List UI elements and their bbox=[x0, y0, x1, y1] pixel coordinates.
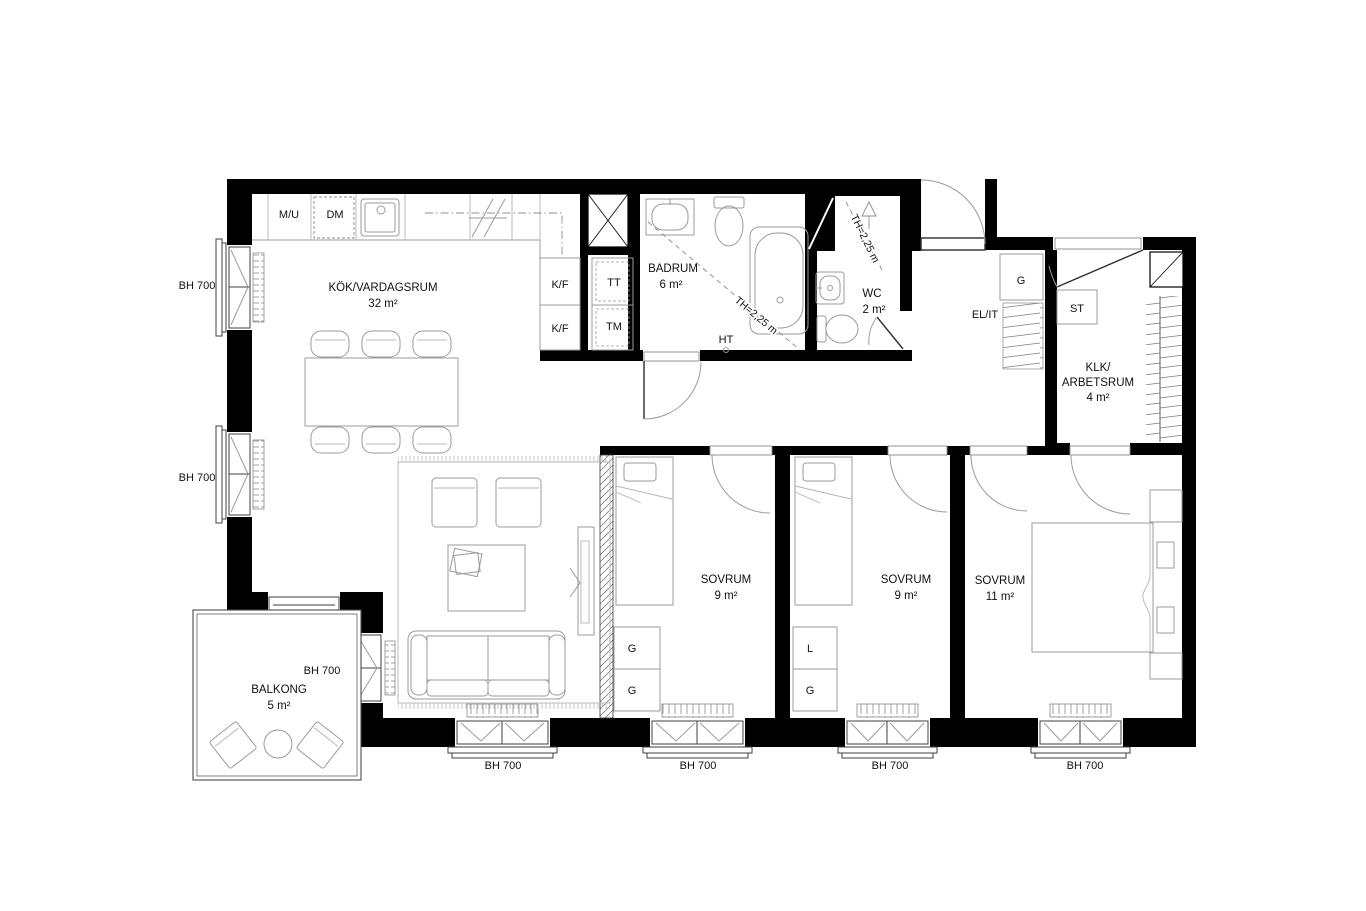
klk-door bbox=[1049, 238, 1143, 287]
annotation-window-height-left-2: BH 700 bbox=[179, 472, 216, 484]
radiator bbox=[857, 704, 918, 717]
label-hall-wardrobe: G bbox=[1017, 275, 1026, 287]
annotation-window-height-bottom-2: BH 700 bbox=[680, 760, 717, 772]
annotation-window-height-balcony: BH 700 bbox=[304, 665, 341, 677]
room-label-bathroom: BADRUM bbox=[648, 263, 698, 275]
bedroom3-door-hall bbox=[970, 446, 1027, 511]
label-bedroom1-wardrobe-2: G bbox=[628, 685, 637, 697]
bedroom1-wardrobes bbox=[614, 627, 660, 711]
room-label-klk-line1: KLK/ bbox=[1086, 362, 1112, 374]
balcony-table-icon bbox=[264, 730, 292, 758]
armchair-icon-2 bbox=[496, 478, 541, 527]
entry-door bbox=[921, 180, 985, 250]
label-fridge-freezer-1: K/F bbox=[551, 279, 568, 291]
bathroom-toilet-icon bbox=[714, 197, 744, 246]
room-area-bedroom1: 9 m² bbox=[715, 590, 738, 602]
room-label-bedroom3: SOVRUM bbox=[975, 575, 1025, 587]
room-label-kitchen-living: KÖK/VARDAGSRUM bbox=[328, 282, 437, 294]
elit-shelving bbox=[1003, 303, 1043, 369]
bedroom1-door bbox=[710, 446, 772, 513]
window-left-1 bbox=[216, 239, 264, 336]
label-washing-machine: TM bbox=[606, 321, 622, 333]
annotation-window-height-bottom-1: BH 700 bbox=[485, 760, 522, 772]
hob-icon bbox=[469, 199, 507, 237]
armchair-icon-1 bbox=[432, 478, 477, 527]
label-cleaning-closet: ST bbox=[1070, 303, 1084, 315]
hatched-partition bbox=[600, 455, 613, 718]
label-electrical-it: EL/IT bbox=[972, 309, 999, 321]
wc-toilet-icon bbox=[817, 315, 858, 343]
window-left-2 bbox=[216, 426, 264, 523]
bedroom2-wardrobes bbox=[793, 627, 837, 711]
dining-table-icon bbox=[305, 331, 458, 453]
room-area-bedroom2: 9 m² bbox=[895, 590, 918, 602]
ventilation-shaft-klk bbox=[1150, 252, 1183, 287]
wc-door bbox=[869, 317, 903, 349]
room-area-kitchen-living: 32 m² bbox=[368, 298, 398, 310]
label-tumble-dryer: TT bbox=[607, 277, 621, 289]
label-microwave-oven: M/U bbox=[279, 209, 299, 221]
radiator bbox=[253, 440, 264, 509]
label-fridge-freezer-2: K/F bbox=[551, 323, 568, 335]
floorplan-canvas: KÖK/VARDAGSRUM 32 m² BADRUM 6 m² WC 2 m²… bbox=[0, 0, 1366, 911]
window-livingroom bbox=[448, 704, 557, 758]
walls bbox=[227, 179, 1196, 747]
label-dishwasher: DM bbox=[326, 209, 343, 221]
window-bedroom1 bbox=[643, 704, 752, 758]
klk-hanging-rail bbox=[1146, 296, 1182, 442]
radiator bbox=[253, 253, 264, 322]
window-bedroom2 bbox=[838, 704, 937, 758]
bathroom-sink-icon bbox=[646, 199, 694, 235]
annotation-window-height-bottom-3: BH 700 bbox=[872, 760, 909, 772]
label-bedroom2-wardrobe: G bbox=[806, 685, 815, 697]
room-area-klk: 4 m² bbox=[1087, 392, 1110, 404]
room-label-klk-line2: ARBETSRUM bbox=[1062, 377, 1134, 389]
annotation-window-height-bottom-4: BH 700 bbox=[1067, 760, 1104, 772]
room-area-bedroom3: 11 m² bbox=[986, 591, 1015, 603]
kitchen-sink-icon bbox=[361, 199, 399, 236]
window-bedroom3 bbox=[1031, 704, 1130, 758]
room-label-balcony: BALKONG bbox=[251, 684, 307, 696]
annotation-door-height-bathroom: TH=2,25 m bbox=[732, 294, 780, 337]
bedroom3-door-klk bbox=[1070, 446, 1130, 514]
bathroom-door bbox=[644, 352, 701, 419]
radiator bbox=[662, 704, 733, 717]
radiator bbox=[385, 641, 395, 695]
ventilation-shaft-kitchen bbox=[588, 194, 628, 247]
room-label-bedroom2: SOVRUM bbox=[881, 574, 931, 586]
bedroom2-door bbox=[888, 446, 947, 512]
fridge-freezer-cabinets bbox=[540, 258, 580, 350]
room-area-balcony: 5 m² bbox=[268, 700, 291, 712]
coffee-table-icon bbox=[448, 545, 525, 611]
room-area-wc: 2 m² bbox=[863, 304, 886, 316]
tv-bench-icon bbox=[570, 527, 594, 635]
wc-sink-icon bbox=[816, 272, 844, 304]
bedroom1-bed-icon bbox=[616, 457, 673, 605]
room-label-bedroom1: SOVRUM bbox=[701, 574, 751, 586]
label-bedroom2-linen: L bbox=[807, 643, 813, 655]
laundry-appliances bbox=[592, 258, 633, 350]
room-label-wc: WC bbox=[862, 288, 881, 300]
label-bedroom1-wardrobe-1: G bbox=[628, 643, 637, 655]
label-towel-dryer: HT bbox=[719, 334, 734, 346]
annotation-window-height-left-1: BH 700 bbox=[179, 280, 216, 292]
radiator bbox=[1050, 704, 1111, 717]
sofa-icon bbox=[408, 631, 565, 699]
bedroom3-bed-icon bbox=[1032, 490, 1182, 679]
bedroom2-bed-icon bbox=[795, 457, 852, 605]
room-area-bathroom: 6 m² bbox=[660, 279, 683, 291]
